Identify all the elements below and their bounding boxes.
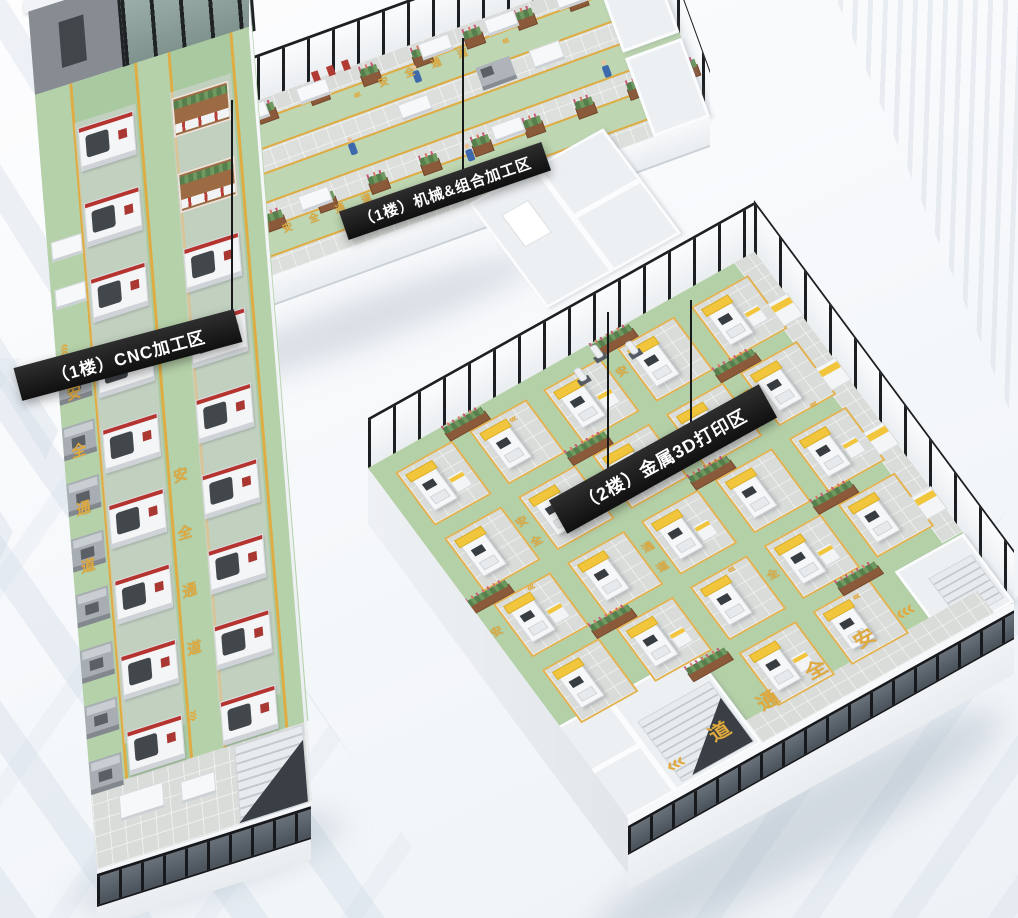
printer-screen	[594, 569, 610, 581]
cnc-machine-window	[128, 657, 153, 686]
printer-screen	[471, 544, 487, 556]
worker-head	[464, 143, 470, 149]
printer-screen	[765, 659, 781, 671]
cnc-machine-window	[203, 401, 228, 430]
printer-tray	[773, 669, 794, 685]
printer-tray	[430, 488, 451, 504]
printer-screen	[520, 610, 536, 622]
cnc-back-door	[58, 14, 86, 68]
cnc-machine-window	[122, 582, 147, 611]
printer-screen	[642, 634, 658, 646]
cnc-machine-window	[134, 732, 159, 761]
printer-screen	[790, 552, 806, 564]
worker-head	[347, 137, 353, 143]
cnc-machine-emblem	[161, 656, 170, 668]
printer-tray	[504, 447, 525, 463]
machine-slot	[89, 657, 103, 671]
printer-screen	[667, 527, 683, 539]
printer-tray	[576, 686, 597, 702]
side-machine-yellow-band	[818, 361, 841, 377]
printer-screen	[839, 617, 855, 629]
machine-slot	[98, 768, 112, 782]
safety-lane-char: 安	[173, 466, 189, 485]
cnc-machine-emblem	[130, 279, 139, 291]
side-machine-yellow-band	[914, 490, 937, 506]
printer-tray	[726, 323, 747, 339]
printer-tray	[528, 620, 549, 636]
printer-tray	[749, 496, 770, 512]
cnc-machine-emblem	[260, 702, 269, 714]
printer-tray	[578, 406, 599, 422]
cnc-machine-window	[91, 204, 116, 233]
cnc-machine-window	[116, 506, 141, 535]
safety-lane-char: 道	[187, 639, 203, 658]
safety-lane-char: 道	[80, 557, 96, 576]
printer-tray	[823, 455, 844, 471]
cnc-machine-window	[209, 476, 234, 505]
cnc-machine-emblem	[142, 430, 151, 442]
aux-yellow-band	[745, 306, 761, 317]
cnc-machine-emblem	[236, 400, 245, 412]
cnc-machine-emblem	[148, 505, 157, 517]
printer-screen	[741, 486, 757, 498]
printer-tray	[650, 644, 671, 660]
cnc-machine-window	[191, 250, 216, 279]
printer-tray	[774, 389, 795, 405]
safety-lane-char: 全	[765, 567, 781, 581]
cnc-machine-emblem	[118, 128, 127, 140]
cnc-machine-window	[221, 627, 246, 656]
printer-tray	[798, 562, 819, 578]
printing-callout-pole-2	[690, 300, 692, 435]
safety-lane-char: 安	[614, 364, 630, 378]
machine-slot	[480, 65, 494, 78]
printer-tray	[479, 554, 500, 570]
machine-slot	[94, 713, 108, 727]
cnc-machine-emblem	[248, 551, 257, 563]
printer-screen	[496, 437, 512, 449]
robot-arm-white	[593, 352, 606, 361]
robot-arm-white	[628, 348, 641, 357]
cnc-machine-emblem	[155, 581, 164, 593]
printer-tray	[675, 537, 696, 553]
utility-partition-wall	[587, 743, 642, 776]
printer-screen	[716, 593, 732, 605]
printer-tray	[652, 364, 673, 380]
printer-screen	[570, 396, 586, 408]
safety-lane-char: 通	[182, 581, 198, 600]
annex-partition-wall	[569, 177, 643, 221]
side-machine-yellow-band	[771, 297, 794, 313]
safety-lane-char: 通	[640, 540, 656, 554]
robot-arm-white	[577, 375, 590, 384]
cnc-machine-window	[97, 280, 122, 309]
annex-bed	[501, 200, 552, 247]
printer-screen	[568, 676, 584, 688]
cnc-machine-emblem	[242, 475, 251, 487]
printer-tray	[872, 520, 893, 536]
factory-3d-layout: 安全通道安全通道‹‹‹‹‹‹‹‹‹ ‹‹‹安全通道‹‹‹安全通道安通安全‹‹‹‹…	[0, 0, 1018, 918]
safety-lane-char: 全	[71, 442, 87, 461]
printer-tray	[602, 579, 623, 595]
cnc-machine-window	[110, 431, 135, 460]
cnc-machine-emblem	[254, 626, 263, 638]
side-machine-yellow-band	[866, 426, 889, 442]
cnc-machine-emblem	[167, 732, 176, 744]
printer-screen	[864, 510, 880, 522]
machine-slot	[85, 601, 99, 615]
printer-screen	[815, 445, 831, 457]
printer-screen	[422, 478, 438, 490]
cnc-machine-window	[85, 129, 110, 158]
safety-lane-char: 通	[76, 499, 92, 518]
safety-lane-char: 道	[654, 560, 670, 574]
cnc-machine-emblem	[124, 203, 133, 215]
printing-callout-pole	[607, 312, 609, 472]
aux-yellow-band	[597, 389, 613, 400]
cnc-machine-window	[227, 703, 252, 732]
printer-screen	[718, 313, 734, 325]
cnc-machine-window	[215, 552, 240, 581]
aux-yellow-band	[842, 438, 858, 449]
machining-callout-pole	[462, 38, 464, 188]
printer-screen	[766, 379, 782, 391]
printer-tray	[724, 603, 745, 619]
printer-screen	[644, 354, 660, 366]
cnc-callout-pole	[231, 100, 233, 332]
safety-lane-char: 全	[177, 524, 193, 543]
aux-yellow-band	[449, 472, 465, 483]
